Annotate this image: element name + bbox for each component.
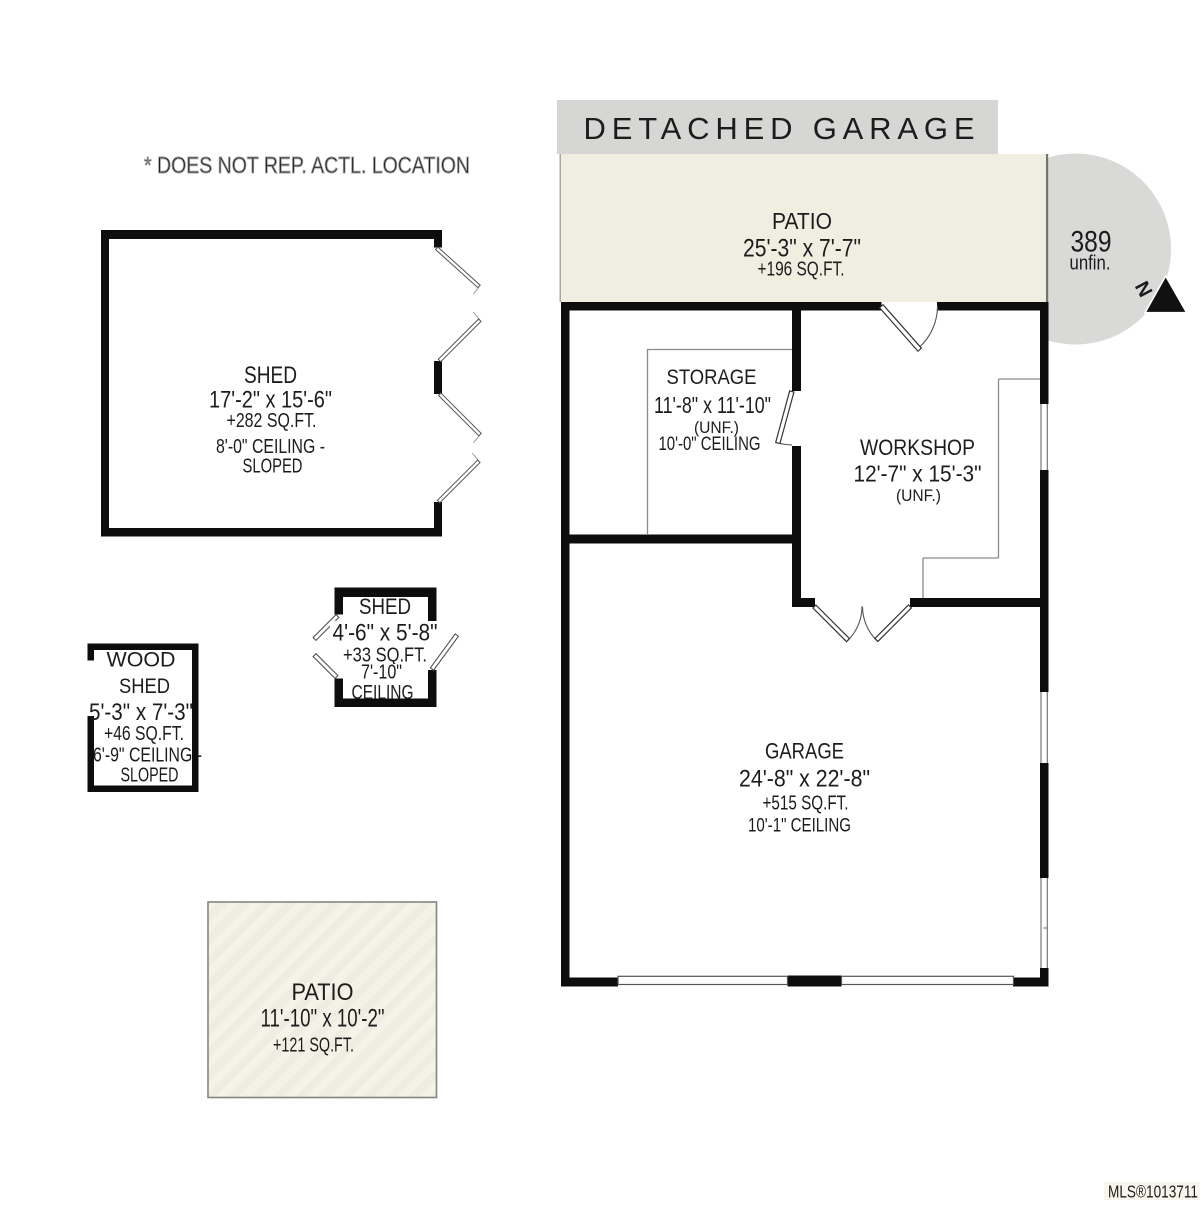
svg-text:MLS®1013711: MLS®1013711 — [1108, 1182, 1198, 1201]
svg-text:+282 SQ.FT.: +282 SQ.FT. — [227, 410, 317, 432]
svg-text:SLOPED: SLOPED — [121, 765, 179, 787]
svg-text:+121 SQ.FT.: +121 SQ.FT. — [273, 1035, 354, 1057]
svg-text:11'-8" x 11'-10": 11'-8" x 11'-10" — [654, 392, 771, 418]
svg-text:SHED: SHED — [244, 362, 297, 389]
svg-text:PATIO: PATIO — [772, 208, 832, 234]
svg-text:5'-3" x 7'-3": 5'-3" x 7'-3" — [89, 699, 193, 726]
svg-text:10'-1" CEILING: 10'-1" CEILING — [748, 816, 851, 837]
svg-text:7'-10": 7'-10" — [361, 662, 402, 684]
svg-text:WORKSHOP: WORKSHOP — [860, 435, 975, 460]
svg-text:6'-9" CEILING -: 6'-9" CEILING - — [93, 745, 202, 767]
svg-text:WOOD: WOOD — [107, 649, 176, 672]
svg-text:SHED: SHED — [119, 675, 170, 698]
svg-text:PATIO: PATIO — [292, 979, 354, 1006]
svg-text:12'-7" x 15'-3": 12'-7" x 15'-3" — [854, 461, 982, 487]
svg-text:GARAGE: GARAGE — [765, 739, 844, 764]
svg-text:4'-6" x 5'-8": 4'-6" x 5'-8" — [333, 620, 438, 647]
svg-text:(UNF.): (UNF.) — [896, 486, 941, 505]
svg-text:* DOES NOT REP. ACTL. LOCATION: * DOES NOT REP. ACTL. LOCATION — [144, 152, 470, 178]
svg-text:24'-8" x 22'-8": 24'-8" x 22'-8" — [739, 766, 870, 793]
svg-text:unfin.: unfin. — [1070, 253, 1111, 275]
svg-text:+196 SQ.FT.: +196 SQ.FT. — [758, 259, 845, 281]
svg-text:SHED: SHED — [359, 594, 411, 619]
svg-text:SLOPED: SLOPED — [243, 456, 303, 478]
svg-text:STORAGE: STORAGE — [667, 365, 757, 389]
svg-text:10'-0" CEILING: 10'-0" CEILING — [659, 434, 761, 455]
svg-text:CEILING: CEILING — [352, 682, 414, 704]
svg-text:11'-10" x 10'-2": 11'-10" x 10'-2" — [261, 1005, 385, 1033]
svg-text:DETACHED GARAGE: DETACHED GARAGE — [584, 111, 975, 146]
svg-text:+515 SQ.FT.: +515 SQ.FT. — [763, 793, 849, 815]
svg-text:+46 SQ.FT.: +46 SQ.FT. — [104, 723, 184, 745]
